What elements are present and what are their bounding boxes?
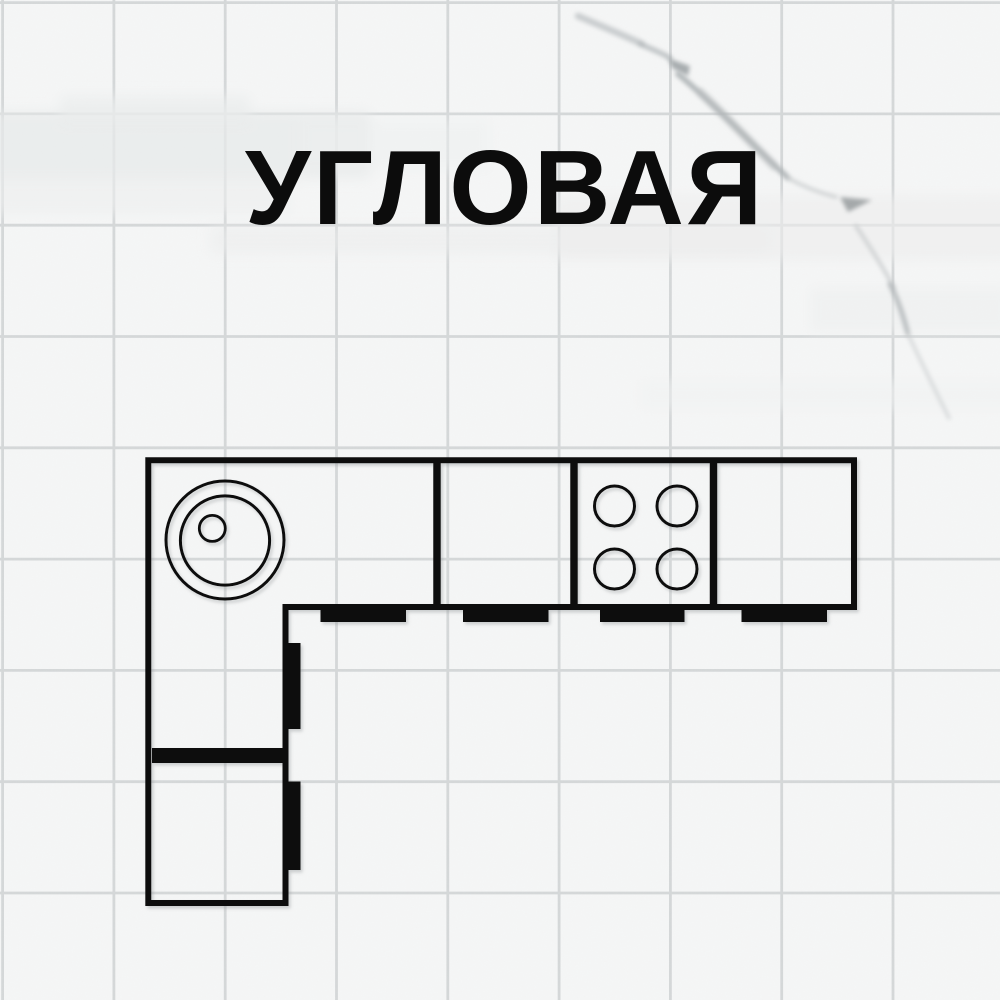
svg-text:УГЛОВАЯ: УГЛОВАЯ [245,129,765,247]
